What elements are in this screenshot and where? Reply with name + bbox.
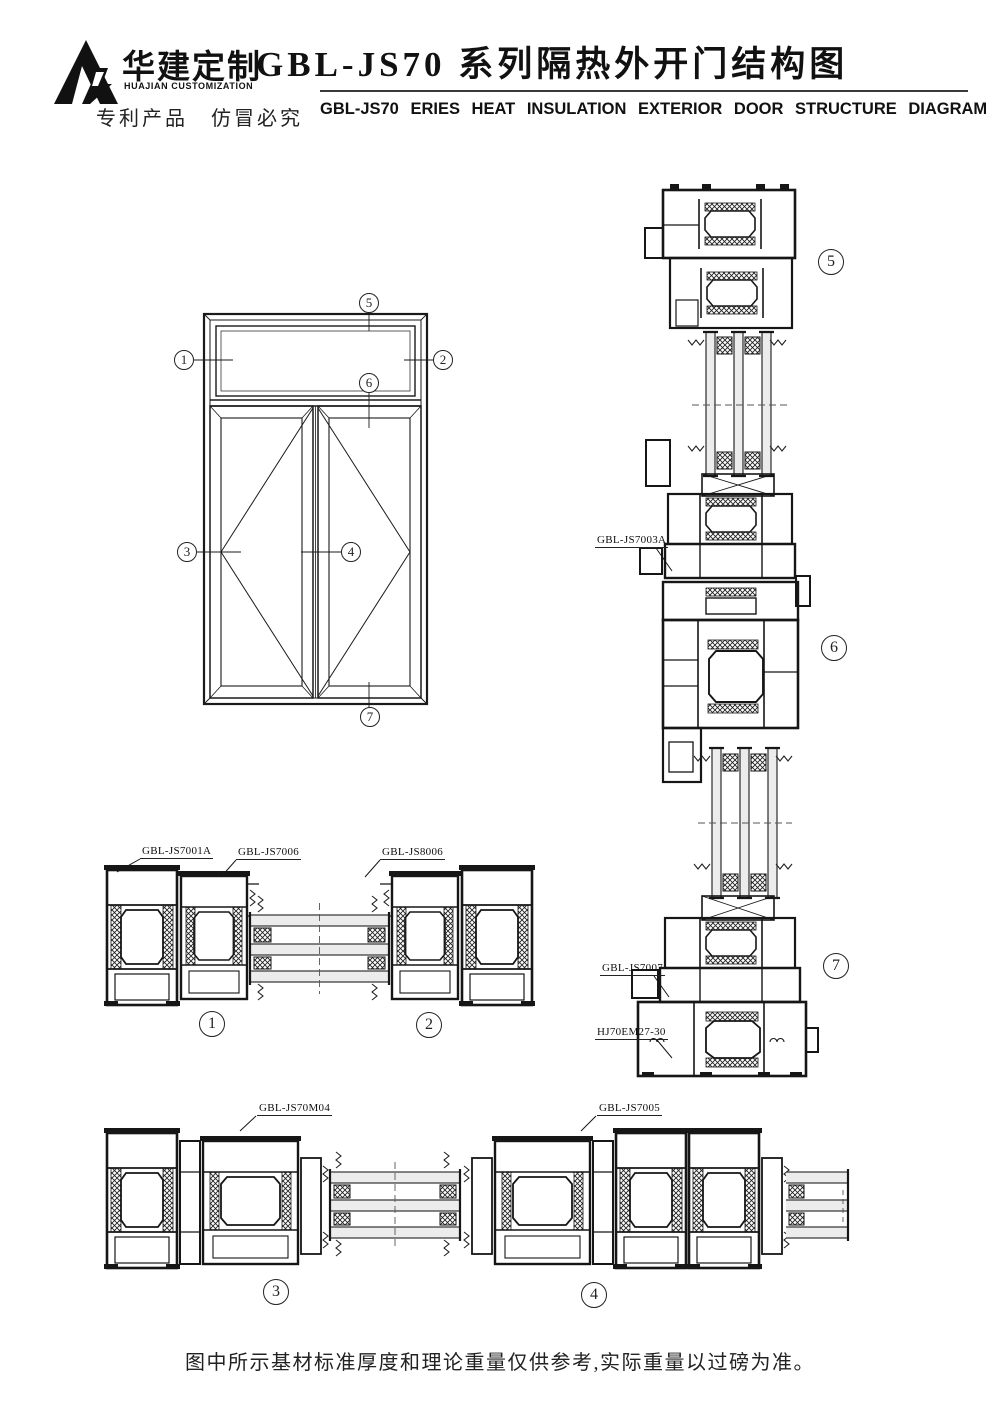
part-label-gbl-js7001a: GBL-JS7001A — [140, 845, 213, 859]
vertical-section — [632, 184, 818, 1077]
callout-section-1: 1 — [199, 1011, 225, 1037]
horizontal-section-3-4 — [104, 1116, 848, 1269]
callout-elevation-5: 5 — [359, 293, 379, 313]
callout-section-5: 5 — [818, 249, 844, 275]
callout-elevation-6: 6 — [359, 373, 379, 393]
drawing-sheet: 华建定制 HUAJIAN CUSTOMIZATION GBL-JS70 系列隔热… — [0, 0, 1000, 1415]
callout-section-4: 4 — [581, 1282, 607, 1308]
part-label-gbl-js70m04: GBL-JS70M04 — [257, 1102, 332, 1116]
callout-elevation-3: 3 — [177, 542, 197, 562]
callout-elevation-2: 2 — [433, 350, 453, 370]
elevation-drawing — [194, 313, 433, 707]
part-label-hj70em27-30: HJ70EM27-30 — [595, 1026, 668, 1040]
callout-section-3: 3 — [263, 1279, 289, 1305]
part-label-gbl-js7003a: GBL-JS7003A — [595, 534, 668, 548]
callout-section-2: 2 — [416, 1012, 442, 1038]
callout-elevation-4: 4 — [341, 542, 361, 562]
callout-section-7: 7 — [823, 953, 849, 979]
part-label-gbl-js7005: GBL-JS7005 — [597, 1102, 662, 1116]
callout-elevation-1: 1 — [174, 350, 194, 370]
structure-drawing — [0, 0, 1000, 1415]
callout-section-6: 6 — [821, 635, 847, 661]
part-label-gbl-js8006: GBL-JS8006 — [380, 846, 445, 860]
callout-elevation-7: 7 — [360, 707, 380, 727]
part-label-gbl-js7006: GBL-JS7006 — [236, 846, 301, 860]
horizontal-section-1-2 — [104, 859, 535, 1006]
part-label-gbl-js7007: GBL-JS7007 — [600, 962, 665, 976]
footer-note: 图中所示基材标准厚度和理论重量仅供参考,实际重量以过磅为准。 — [0, 1346, 1000, 1375]
